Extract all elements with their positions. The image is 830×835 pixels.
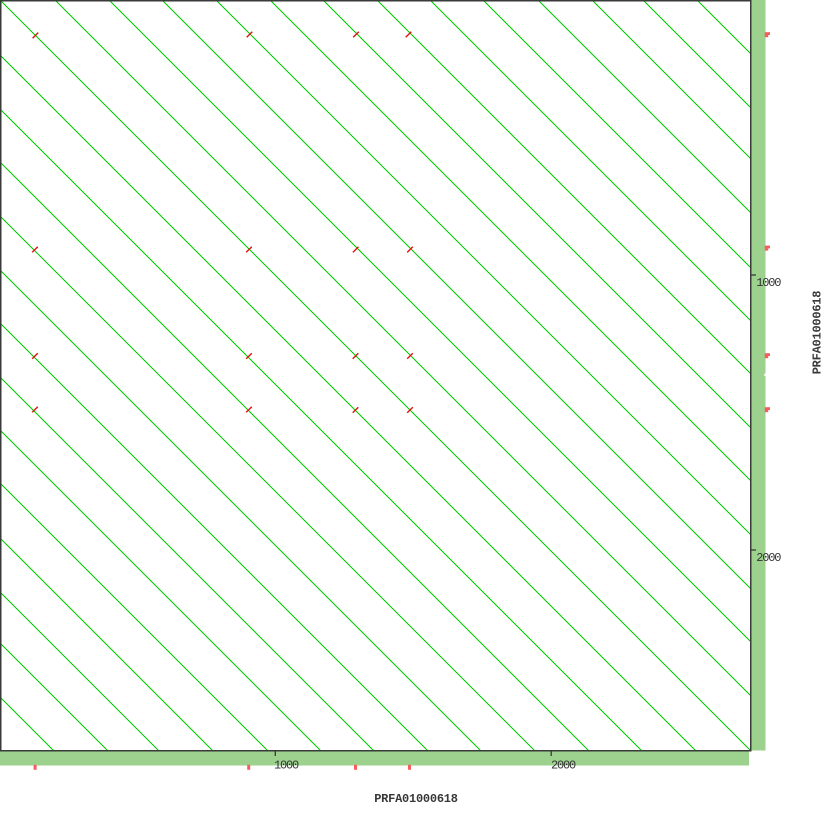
svg-text:2000: 2000	[551, 759, 576, 773]
svg-text:PRFA01000618: PRFA01000618	[811, 291, 825, 375]
svg-text:1000: 1000	[756, 276, 781, 290]
svg-text:1000: 1000	[274, 759, 299, 773]
svg-text:2000: 2000	[756, 551, 781, 565]
svg-text:PRFA01000618: PRFA01000618	[374, 792, 458, 806]
